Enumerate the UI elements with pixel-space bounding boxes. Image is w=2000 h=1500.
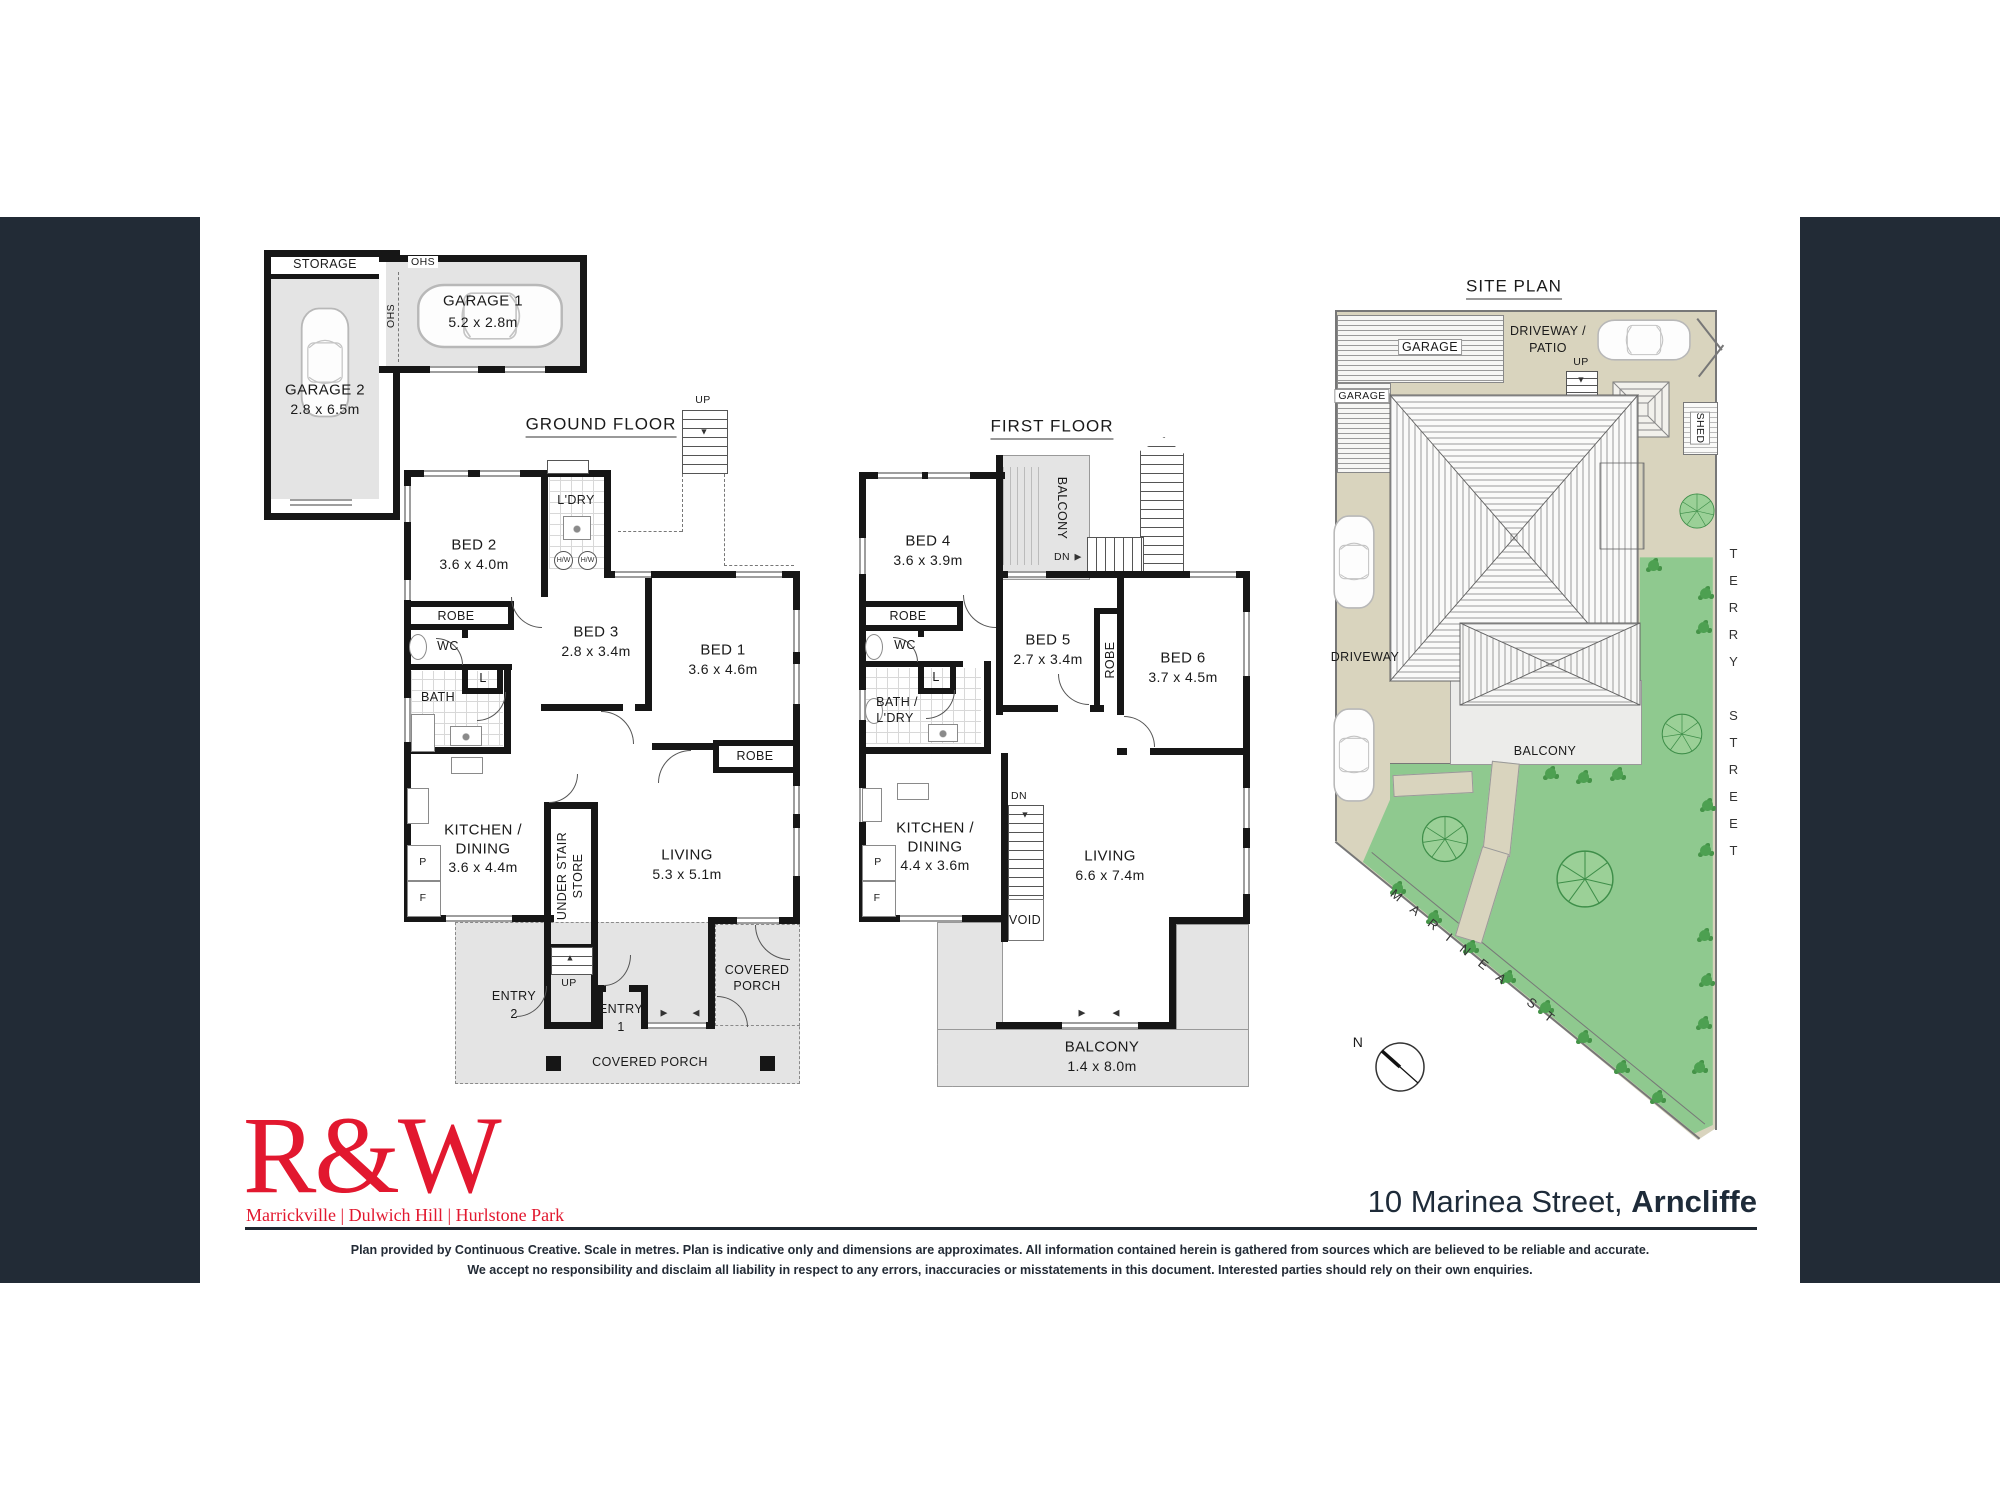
robe-label: ROBE	[889, 609, 926, 623]
wall	[996, 578, 1003, 715]
laundry-label: L'DRY	[557, 493, 595, 507]
stairs	[682, 410, 728, 474]
wall	[1169, 917, 1176, 1029]
hot-water-unit: H/W	[554, 551, 573, 570]
door-arc	[963, 595, 996, 628]
wall	[591, 802, 598, 1029]
kitchen-label2: DINING	[456, 841, 511, 858]
house-roof	[1388, 393, 1646, 765]
wall	[580, 255, 587, 373]
wall	[544, 1022, 598, 1029]
wall	[984, 661, 991, 753]
bed5-dims: 2.7 x 3.4m	[1013, 651, 1082, 667]
door-arc	[1124, 716, 1155, 747]
wall	[404, 624, 514, 630]
sink	[862, 788, 882, 822]
window	[430, 366, 478, 373]
shrub-icon	[1578, 772, 1589, 783]
porch-post	[760, 1056, 775, 1071]
window	[1190, 571, 1236, 578]
bath-label2: L'DRY	[876, 711, 914, 725]
porch-bottom-label: COVERED PORCH	[592, 1055, 708, 1069]
address-street: 10 Marinea Street,	[1368, 1184, 1632, 1219]
entry2-num: 2	[510, 1007, 517, 1021]
shrub-icon	[1698, 1018, 1709, 1029]
dashed-line	[618, 531, 682, 532]
boundary-line	[1335, 310, 1717, 312]
kitchen-label1: KITCHEN /	[896, 820, 974, 837]
arrow-right-icon: ▶	[1075, 553, 1082, 562]
footer-rule	[245, 1227, 1757, 1230]
window	[480, 470, 520, 477]
under-stair-label2: STORE	[571, 854, 585, 899]
wall	[629, 985, 641, 992]
wall	[708, 917, 715, 1029]
tree-icon	[1678, 492, 1716, 530]
shrub-icon	[1702, 800, 1713, 811]
wall	[379, 366, 587, 373]
arrow-left-icon: ◀	[1113, 1009, 1120, 1018]
wall	[645, 571, 652, 711]
window	[404, 698, 411, 742]
bed6-dims: 3.7 x 4.5m	[1148, 669, 1217, 685]
window	[1243, 612, 1250, 676]
shrub-icon	[1652, 1092, 1663, 1103]
balcony-deck	[1003, 467, 1045, 565]
bed3-dims: 2.8 x 3.4m	[561, 643, 630, 659]
living-dims: 6.6 x 7.4m	[1075, 867, 1144, 883]
window	[793, 664, 800, 704]
wall	[918, 625, 924, 637]
wall	[544, 802, 598, 809]
balcony-label: BALCONY	[1065, 1039, 1140, 1056]
window	[615, 571, 651, 578]
shrub-icon	[1545, 768, 1556, 779]
porch-right-label2: PORCH	[733, 979, 780, 993]
bath-label: BATH	[421, 690, 455, 704]
balcony-dims: 1.4 x 8.0m	[1067, 1058, 1136, 1074]
shower	[411, 714, 435, 752]
window	[424, 470, 468, 477]
window	[900, 915, 962, 922]
robe-mid-label: ROBE	[1103, 641, 1117, 678]
window	[793, 828, 800, 876]
kitchen-label1: KITCHEN /	[444, 822, 522, 839]
wall	[652, 743, 716, 750]
robe-label: ROBE	[437, 609, 474, 623]
wall	[541, 704, 623, 711]
tree-icon	[1660, 712, 1704, 756]
property-address: 10 Marinea Street, Arncliffe	[1000, 1184, 1757, 1220]
terry-street-label: TERRY STREET	[1726, 546, 1741, 876]
dashed-line	[682, 474, 683, 532]
sliding-door	[1062, 1022, 1138, 1029]
garage2-dims: 2.8 x 6.5m	[290, 401, 359, 417]
window	[404, 486, 411, 522]
window	[928, 472, 970, 479]
bed1-dims: 3.6 x 4.6m	[688, 661, 757, 677]
stove	[451, 757, 483, 774]
compass-icon	[1360, 1036, 1432, 1098]
shrub-icon	[1578, 1032, 1589, 1043]
wall	[996, 1022, 1062, 1029]
tree-icon	[1554, 848, 1616, 910]
left-navy-bar	[0, 217, 200, 1283]
wall	[957, 601, 963, 631]
car-icon	[1331, 514, 1377, 610]
hot-water-unit: H/W	[578, 551, 597, 570]
tree-icon	[1420, 814, 1470, 864]
bed4-label: BED 4	[905, 533, 950, 550]
wall	[541, 470, 548, 597]
wall	[713, 767, 800, 773]
entry2-label: ENTRY	[492, 989, 536, 1003]
pantry-label: P	[874, 856, 881, 868]
floor-plan-canvas: STORAGE GARAGE 2 2.8 x 6.5m OHS OHS GARA…	[0, 0, 2000, 1500]
dn-label: DN	[1054, 551, 1070, 563]
door-arc	[549, 774, 578, 803]
address-suburb: Arncliffe	[1631, 1184, 1757, 1219]
driveway-patio-label1: DRIVEWAY /	[1510, 324, 1586, 338]
window	[446, 915, 512, 922]
wall	[635, 704, 652, 711]
garage1-label: GARAGE 1	[443, 293, 523, 310]
wall	[462, 626, 468, 638]
under-stair-label1: UNDER STAIR	[555, 832, 569, 920]
garage1-dims: 5.2 x 2.8m	[448, 314, 517, 330]
toilet	[409, 634, 427, 660]
right-navy-bar	[1800, 217, 2000, 1283]
window	[736, 571, 782, 578]
wall	[859, 601, 963, 607]
wall	[859, 625, 963, 631]
living-label: LIVING	[661, 847, 713, 864]
storage-label: STORAGE	[293, 257, 357, 271]
wall	[1094, 608, 1100, 712]
porch-post	[546, 1056, 561, 1071]
first-floor-title: FIRST FLOOR	[990, 417, 1113, 440]
wall	[1169, 917, 1250, 924]
logo-offices: Marrickville | Dulwich Hill | Hurlstone …	[246, 1205, 564, 1226]
dn-stair-label: DN	[1011, 790, 1027, 802]
shrub-icon	[1616, 1062, 1627, 1073]
wall	[604, 470, 611, 578]
window	[290, 499, 352, 506]
toilet	[865, 634, 883, 660]
window	[793, 786, 800, 814]
pantry-label: P	[419, 856, 426, 868]
garage2-label: GARAGE 2	[285, 382, 365, 399]
entry1-label: ENTRY	[599, 1002, 643, 1016]
arrow-up-icon: ▲	[566, 954, 575, 963]
balcony-top-label: BALCONY	[1055, 477, 1069, 540]
arrow-down-icon: ▼	[700, 428, 709, 437]
wall	[1117, 748, 1127, 755]
site-balcony-label: BALCONY	[1514, 744, 1577, 758]
exterior-stairs	[1140, 437, 1184, 577]
living-dims: 5.3 x 5.1m	[652, 866, 721, 882]
window	[1243, 788, 1250, 828]
balcony-door	[1008, 571, 1046, 578]
ohs-dashed-line	[398, 272, 399, 362]
bed4-dims: 3.6 x 3.9m	[893, 552, 962, 568]
fridge-label: F	[874, 892, 881, 904]
bed1-label: BED 1	[700, 642, 745, 659]
path	[1392, 771, 1473, 797]
wall	[504, 664, 511, 754]
window	[505, 366, 545, 373]
wall	[1001, 753, 1008, 942]
dashed-line	[724, 474, 725, 566]
site-plan-title: SITE PLAN	[1466, 277, 1562, 300]
living-label: LIVING	[1084, 848, 1136, 865]
sink	[407, 788, 429, 824]
stove	[897, 783, 929, 800]
bed5-label: BED 5	[1025, 632, 1070, 649]
up-label: UP	[695, 394, 710, 406]
car-icon	[1331, 707, 1377, 803]
up-label: UP	[1573, 356, 1588, 368]
wall	[1117, 578, 1124, 715]
arrow-left-icon: ◀	[693, 1009, 700, 1018]
shrub-icon	[1612, 769, 1623, 780]
laundry-tub	[563, 516, 591, 540]
wall	[859, 747, 991, 754]
window	[878, 472, 922, 479]
wall	[1150, 748, 1250, 755]
fridge-label: F	[420, 892, 427, 904]
wall	[996, 705, 1058, 712]
bed2-label: BED 2	[451, 537, 496, 554]
void-label: VOID	[1009, 913, 1041, 927]
kitchen-dims: 4.4 x 3.6m	[900, 857, 969, 873]
balcony-right-arm	[1176, 924, 1249, 1031]
rw-logo: R&W	[243, 1103, 500, 1208]
door-arc	[601, 711, 634, 744]
arrow-right-icon: ▶	[1079, 1009, 1086, 1018]
robe-label: ROBE	[736, 749, 773, 763]
shrub-icon	[1699, 930, 1710, 941]
bed6-label: BED 6	[1160, 650, 1205, 667]
ground-floor-title: GROUND FLOOR	[526, 415, 677, 438]
bath-label1: BATH /	[876, 695, 918, 709]
wall	[404, 601, 514, 607]
wall	[713, 740, 800, 746]
shrub-icon	[1700, 588, 1711, 599]
shrub-icon	[1694, 1062, 1705, 1073]
ohs-top-label: OHS	[408, 256, 438, 268]
ohs-side-label: OHS	[385, 304, 397, 328]
shrub-icon	[1700, 845, 1711, 856]
disclaimer-line2: We accept no responsibility and disclaim…	[200, 1263, 1800, 1277]
arrow-down-icon: ▼	[1021, 811, 1030, 820]
shrub-icon	[1698, 622, 1709, 633]
car-icon	[1596, 317, 1692, 363]
arrow-down-icon: ▼	[1577, 376, 1586, 385]
window	[793, 610, 800, 652]
driveway-patio-label2: PATIO	[1529, 341, 1567, 355]
sliding-door	[648, 1022, 706, 1029]
driveway-label: DRIVEWAY	[1331, 650, 1399, 664]
door-arc	[1058, 674, 1089, 705]
window	[1243, 848, 1250, 894]
bed2-dims: 3.6 x 4.0m	[439, 556, 508, 572]
entry1-num: 1	[617, 1020, 624, 1034]
exterior-stairs	[1087, 537, 1144, 575]
wall	[713, 740, 719, 773]
wall	[996, 455, 1003, 578]
porch-right-label1: COVERED	[725, 963, 790, 977]
door-arc	[511, 597, 542, 628]
linen-label: L	[479, 671, 486, 685]
shrub-icon	[1701, 975, 1712, 986]
window	[547, 460, 589, 474]
arrow-right-icon: ▶	[661, 1009, 668, 1018]
linen-label: L	[932, 670, 939, 684]
window	[859, 538, 866, 574]
disclaimer-line1: Plan provided by Continuous Creative. Sc…	[200, 1243, 1800, 1257]
up-stair-label: UP	[561, 977, 576, 989]
window	[404, 580, 411, 600]
vanity	[928, 724, 958, 742]
door-arc	[658, 750, 691, 783]
wc-label: WC	[894, 638, 916, 652]
wc-label: WC	[437, 639, 459, 653]
bed3-label: BED 3	[573, 624, 618, 641]
garage-left-label: GARAGE	[1334, 389, 1389, 403]
kitchen-label2: DINING	[908, 839, 963, 856]
shrub-icon	[1648, 560, 1659, 571]
garage-top-label: GARAGE	[1398, 339, 1462, 355]
kitchen-dims: 3.6 x 4.4m	[448, 859, 517, 875]
dashed-line	[724, 565, 794, 566]
vanity	[450, 726, 482, 746]
window	[737, 917, 779, 924]
shed-label: SHED	[1690, 412, 1710, 445]
